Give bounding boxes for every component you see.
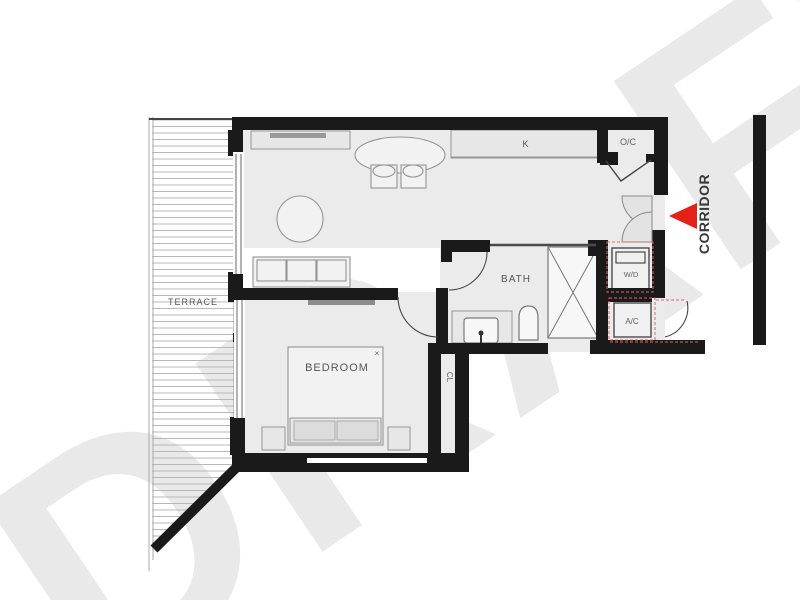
credenza-detail: [270, 133, 326, 138]
corridor-wall-bar: [753, 115, 766, 345]
kitchen-label: K: [522, 139, 529, 149]
bed-pillow-right: [337, 421, 378, 440]
washer-dryer-unit: [612, 248, 649, 289]
terrace-label: TERRACE: [168, 297, 218, 307]
wall-wd-ac-divider: [608, 288, 652, 302]
wall-bath-bottom: [428, 343, 548, 354]
wall-bedroom-top: [232, 288, 398, 300]
wall-oc-stub: [600, 152, 618, 165]
wall-cl-east: [455, 352, 469, 472]
oc-closet-label: O/C: [620, 137, 637, 147]
sofa-cushion-1: [257, 260, 286, 281]
bed-corner-mark: ×: [375, 349, 380, 358]
sofa-cushion-2: [287, 260, 316, 281]
floor-plan-page: DRAFT: [0, 0, 800, 600]
dining-chair-left-seat: [373, 165, 395, 177]
wall-bath-top: [443, 240, 490, 252]
washer-dryer-label: W/D: [624, 270, 639, 279]
wall-right-mid: [652, 230, 665, 298]
nightstand-left: [262, 427, 285, 450]
corridor-label: CORRIDOR: [696, 174, 712, 254]
wall-bottom-window-inset: [307, 458, 427, 463]
toilet: [519, 306, 538, 340]
wall-right-upper: [654, 117, 668, 195]
wall-left-lower: [230, 417, 245, 455]
floor-plan-canvas: DRAFT: [0, 0, 800, 600]
bedroom-window-backing: [234, 300, 245, 418]
bath-label: BATH: [501, 274, 531, 285]
sofa-cushion-3: [317, 260, 346, 281]
wall-utility-west: [596, 240, 608, 352]
ac-label: A/C: [625, 317, 639, 326]
round-table: [277, 196, 323, 242]
bedroom-label: BEDROOM: [305, 362, 369, 374]
living-window-backing: [233, 152, 244, 274]
vanity-faucet: [479, 331, 484, 336]
wall-cl-west: [428, 343, 441, 472]
bed-pillow-left: [294, 421, 335, 440]
dining-chair-right-seat: [403, 165, 423, 177]
nightstand-right: [388, 427, 410, 450]
dining-table: [355, 137, 445, 173]
cl-closet-label: CL: [445, 372, 454, 383]
